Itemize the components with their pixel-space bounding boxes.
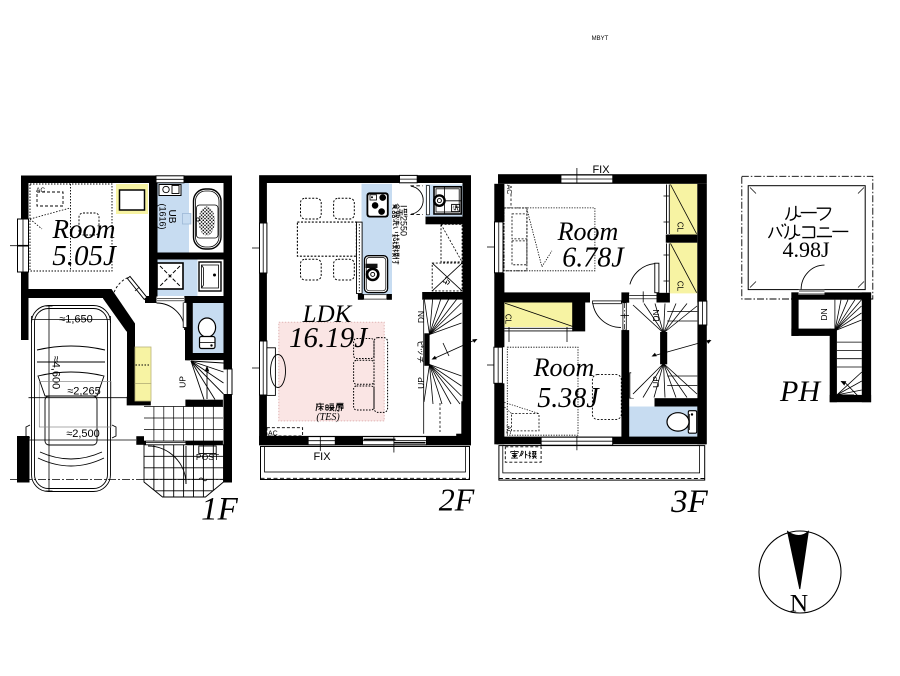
svg-text:1F: 1F [201, 492, 239, 528]
svg-text:DN: DN [819, 308, 829, 320]
svg-text:16.19J: 16.19J [289, 322, 368, 354]
svg-text:≈4,600: ≈4,600 [50, 356, 62, 390]
svg-text:UP: UP [416, 377, 426, 389]
svg-text:≈1,650: ≈1,650 [59, 314, 93, 326]
svg-text:6.78J: 6.78J [562, 243, 625, 274]
svg-text:FIX: FIX [592, 164, 610, 176]
svg-text:I: I [399, 205, 409, 208]
svg-text:PH: PH [779, 375, 822, 408]
svg-text:3F: 3F [670, 484, 709, 520]
svg-text:≈2,265: ≈2,265 [67, 386, 101, 398]
svg-text:CL: CL [676, 281, 685, 292]
svg-text:(TES): (TES) [316, 412, 340, 423]
svg-text:2550: 2550 [399, 216, 409, 236]
svg-text:MBYT: MBYT [592, 36, 609, 42]
svg-text:POST: POST [196, 452, 219, 462]
svg-text:AC: AC [36, 187, 45, 194]
svg-text:DN: DN [651, 309, 661, 321]
svg-text:AC: AC [268, 431, 278, 438]
svg-text:DN: DN [416, 311, 426, 323]
svg-text:CL: CL [504, 314, 513, 325]
svg-text:N: N [790, 589, 808, 618]
svg-text:≈2,500: ≈2,500 [66, 428, 100, 440]
svg-text:AC: AC [505, 425, 512, 434]
svg-text:5.38J: 5.38J [537, 383, 600, 414]
svg-text:5.05J: 5.05J [52, 240, 117, 272]
svg-text:Room: Room [533, 353, 595, 382]
svg-text:AC: AC [505, 185, 512, 195]
svg-text:2F: 2F [439, 482, 475, 518]
svg-text:CL: CL [676, 222, 685, 233]
svg-text:UP: UP [651, 376, 661, 388]
svg-text:UP: UP [178, 376, 188, 388]
svg-text:4.98J: 4.98J [782, 237, 830, 262]
svg-text:(1616): (1616) [158, 203, 168, 229]
svg-text:FIX: FIX [313, 451, 331, 463]
